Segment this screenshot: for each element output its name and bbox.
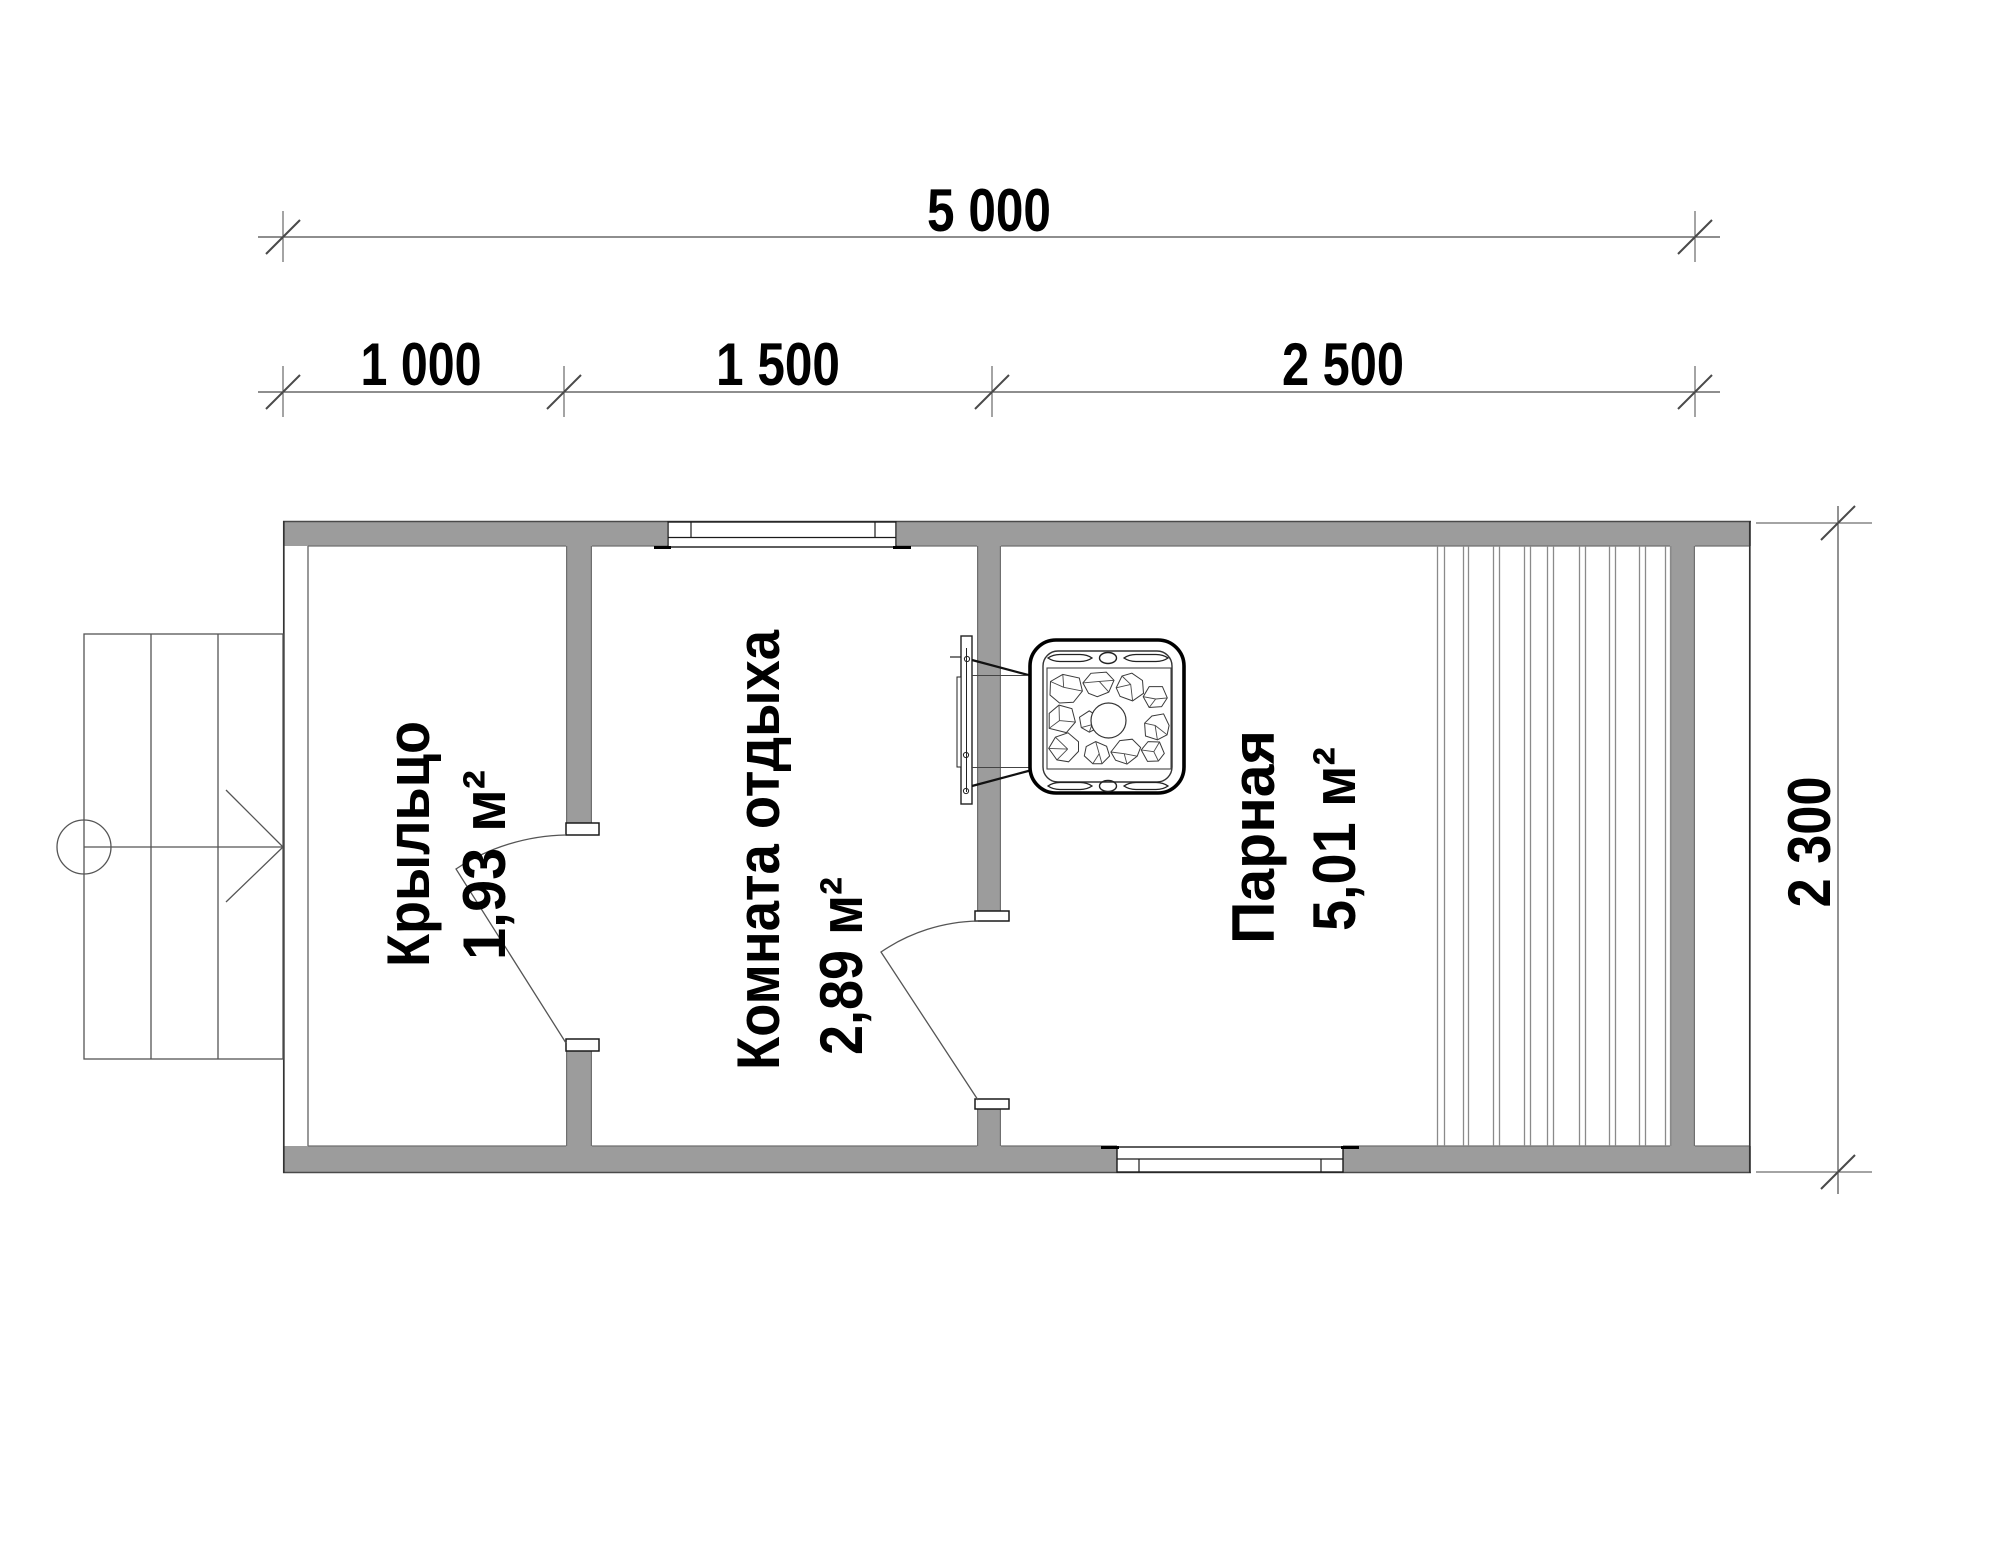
svg-text:2,89 м²: 2,89 м² bbox=[808, 877, 875, 1055]
svg-text:1,93 м²: 1,93 м² bbox=[451, 770, 518, 960]
svg-text:Комната отдыха: Комната отдыха bbox=[725, 629, 792, 1070]
svg-text:2 300: 2 300 bbox=[1776, 777, 1843, 908]
svg-text:1 500: 1 500 bbox=[716, 331, 840, 398]
svg-text:1 000: 1 000 bbox=[361, 331, 482, 398]
svg-text:Парная: Парная bbox=[1220, 730, 1287, 944]
svg-text:5 000: 5 000 bbox=[927, 177, 1051, 244]
svg-text:2 500: 2 500 bbox=[1282, 331, 1404, 398]
svg-text:Крыльцо: Крыльцо bbox=[375, 721, 442, 967]
svg-text:5,01 м²: 5,01 м² bbox=[1301, 747, 1368, 931]
